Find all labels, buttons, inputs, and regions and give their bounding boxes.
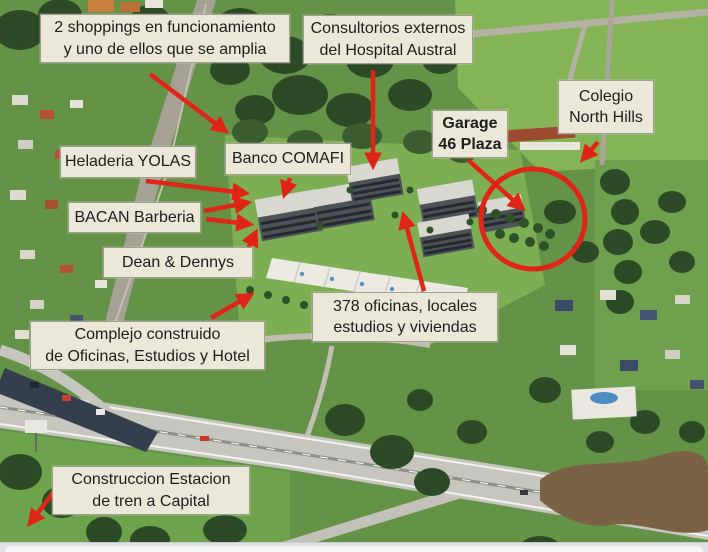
label-consultorios-line1: Consultorios externos bbox=[311, 18, 466, 39]
arrow-colegio bbox=[584, 142, 598, 158]
arrow-heladeria bbox=[146, 181, 244, 193]
label-colegio-north-hills: Colegio North Hills bbox=[558, 80, 654, 134]
arrow-shoppings bbox=[150, 74, 224, 130]
arrow-oficinas bbox=[404, 217, 424, 291]
label-banco-text: Banco COMAFI bbox=[232, 148, 344, 169]
label-378-oficinas: 378 oficinas, locales estudios y viviend… bbox=[312, 292, 498, 342]
label-colegio-line2: North Hills bbox=[569, 107, 643, 128]
label-heladeria-text: Heladeria YOLAS bbox=[65, 151, 191, 172]
label-shoppings: 2 shoppings en funcionamiento y uno de e… bbox=[40, 14, 290, 63]
horizontal-scrollbar-track bbox=[0, 542, 708, 552]
label-oficinas-line1: 378 oficinas, locales bbox=[333, 296, 477, 317]
arrow-complejo bbox=[211, 296, 249, 318]
label-bacan-barberia: BACAN Barberia bbox=[68, 202, 201, 233]
label-complejo-line2: de Oficinas, Estudios y Hotel bbox=[45, 346, 250, 367]
horizontal-scrollbar-thumb[interactable] bbox=[5, 546, 703, 552]
label-garage-46-plaza: Garage 46 Plaza bbox=[432, 110, 508, 158]
label-oficinas-line2: estudios y viviendas bbox=[333, 317, 476, 338]
label-consultorios: Consultorios externos del Hospital Austr… bbox=[303, 15, 473, 64]
label-banco-comafi: Banco COMAFI bbox=[225, 143, 351, 175]
arrow-bacan-1 bbox=[204, 203, 246, 211]
label-complejo-construido: Complejo construido de Oficinas, Estudio… bbox=[30, 321, 265, 370]
arrow-banco bbox=[285, 178, 290, 193]
annotated-aerial-slide: 2 shoppings en funcionamiento y uno de e… bbox=[0, 0, 708, 552]
label-garage-line1: Garage bbox=[442, 113, 497, 134]
label-estacion-line2: de tren a Capital bbox=[92, 491, 209, 512]
arrow-bacan-2 bbox=[206, 219, 248, 224]
highlight-circle-garage bbox=[481, 169, 585, 269]
label-estacion-line1: Construccion Estacion bbox=[71, 469, 230, 490]
label-shoppings-line2: y uno de ellos que se amplia bbox=[64, 39, 267, 60]
label-dean-text: Dean & Dennys bbox=[122, 252, 234, 273]
label-dean-dennys: Dean & Dennys bbox=[103, 247, 253, 278]
label-colegio-line1: Colegio bbox=[579, 86, 633, 107]
label-heladeria-yolas: Heladeria YOLAS bbox=[60, 146, 196, 178]
label-bacan-text: BACAN Barberia bbox=[74, 207, 194, 228]
label-construccion-estacion: Construccion Estacion de tren a Capital bbox=[52, 466, 250, 515]
label-complejo-line1: Complejo construido bbox=[75, 324, 221, 345]
label-shoppings-line1: 2 shoppings en funcionamiento bbox=[54, 17, 276, 38]
label-consultorios-line2: del Hospital Austral bbox=[320, 40, 457, 61]
label-garage-line2: 46 Plaza bbox=[438, 134, 501, 155]
